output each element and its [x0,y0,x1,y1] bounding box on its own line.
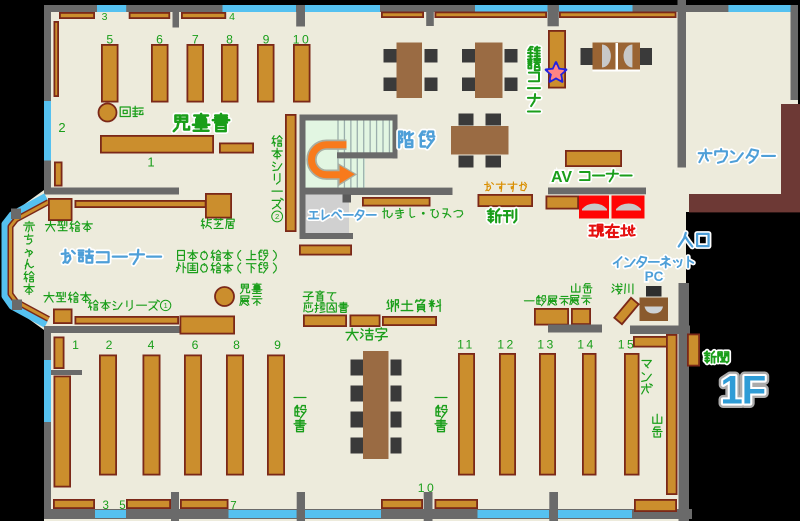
svg-text:9: 9 [274,338,281,352]
svg-text:PC: PC [645,269,664,284]
svg-text:11: 11 [457,338,475,352]
svg-text:4: 4 [148,338,155,352]
svg-text:5: 5 [106,33,113,47]
svg-text:14: 14 [577,338,596,352]
svg-text:8: 8 [233,338,240,352]
svg-text:3: 3 [102,500,108,512]
svg-text:2: 2 [275,212,279,221]
svg-text:10: 10 [293,33,312,47]
svg-text:15: 15 [618,338,637,352]
svg-text:AV: AV [551,169,572,186]
svg-text:2: 2 [106,338,113,352]
svg-text:6: 6 [156,33,163,47]
svg-text:9: 9 [263,33,270,47]
svg-text:2: 2 [58,120,65,135]
svg-text:1: 1 [164,301,168,310]
svg-text:3: 3 [102,11,108,23]
svg-text:7: 7 [230,500,236,512]
svg-text:13: 13 [537,338,556,352]
svg-text:6: 6 [192,338,199,352]
svg-text:12: 12 [497,338,516,352]
svg-text:1: 1 [147,155,154,170]
svg-text:7: 7 [192,33,199,47]
svg-text:1: 1 [72,338,79,352]
svg-text:8: 8 [226,33,233,47]
svg-text:10: 10 [418,481,437,495]
svg-text:5: 5 [119,500,125,512]
svg-text:4: 4 [229,11,235,23]
svg-text:1F: 1F [721,369,766,413]
